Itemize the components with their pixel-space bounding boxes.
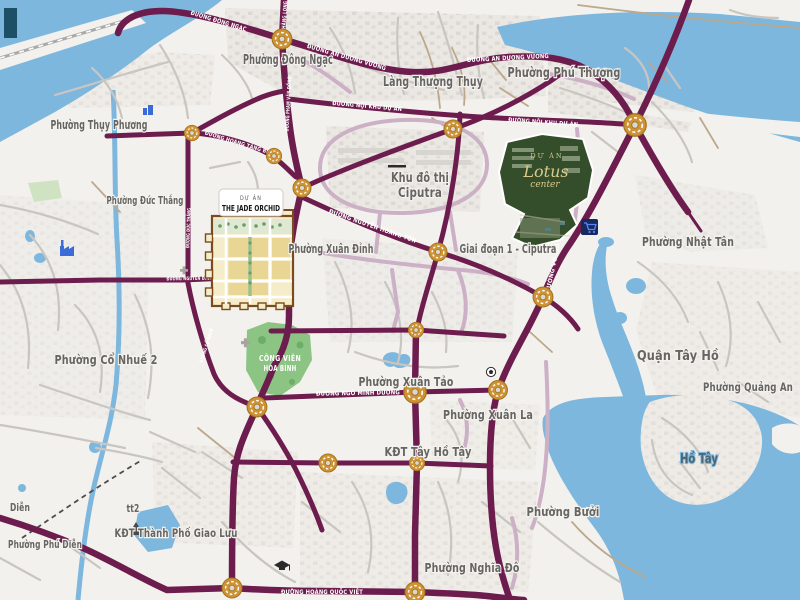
label-giai-doan-1: Giai đoạn 1 - Ciputra <box>460 241 557 256</box>
label-duc-thang: Phường Đức Thắng <box>107 194 184 207</box>
park-label: CÔNG VIÊN HÒA BÌNH <box>259 352 301 373</box>
label-xuan-dinh: Phường Xuân Đỉnh <box>289 241 374 256</box>
label-nhat-tan: Phường Nhật Tân <box>642 234 734 249</box>
roundabout-icon <box>222 578 242 598</box>
monument-marker <box>388 165 406 168</box>
label-thuy-phuong: Phường Thụy Phương <box>51 117 148 132</box>
lotus-sub: center <box>530 180 560 190</box>
label-ho-tay: Hồ Tây <box>680 452 718 467</box>
roundabout-icon <box>266 148 281 163</box>
label-kdt-tay-ho-tay: KĐT Tây Hồ Tây <box>385 444 472 459</box>
map-screenshot: ĐƯỜNG ĐÔNG NGẠC CẦU THĂNG LONG ĐƯỜNG AN … <box>0 0 800 600</box>
roundabout-icon <box>184 125 199 140</box>
lotus-tag: DỰ ÁN <box>530 151 563 160</box>
label-dong-ngac: Phường Đông Ngạc <box>243 53 333 68</box>
soccer-ball-icon <box>486 367 495 376</box>
label-giao-luu: KĐT Thành Phố Giao Lưu <box>115 526 238 540</box>
roundabout-icon <box>429 243 447 261</box>
map-canvas: ĐƯỜNG ĐÔNG NGẠC CẦU THĂNG LONG ĐƯỜNG AN … <box>0 0 800 600</box>
label-nghia-do: Phường Nghĩa Đô <box>425 560 520 575</box>
roundabout-icon <box>533 287 553 307</box>
roundabout-icon <box>405 582 425 600</box>
lotus-name: Lotus <box>522 162 568 181</box>
roundabout-icon <box>272 29 292 49</box>
jade-orchid-tag: DỰ ÁN <box>240 193 262 202</box>
shopping-cart-icon <box>581 219 598 235</box>
dock-structure <box>4 8 17 38</box>
label-lang-thuong-thuy: Làng Thượng Thụy <box>383 75 483 90</box>
roundabout-icon <box>624 114 647 137</box>
roundabout-icon <box>293 179 311 197</box>
roundabout-icon <box>444 120 462 138</box>
label-quang-an: Phường Quảng An <box>703 380 793 394</box>
park-label-line2: HÒA BÌNH <box>264 362 297 373</box>
green-patch <box>28 180 62 202</box>
park-label-line1: CÔNG VIÊN <box>259 352 301 363</box>
label-buoi: Phường Bưởi <box>527 504 600 519</box>
roundabout-icon <box>319 454 337 472</box>
roundabout-icon <box>408 322 423 337</box>
jade-orchid-siteplan <box>206 210 294 310</box>
jade-orchid-name: THE JADE ORCHID <box>222 204 280 213</box>
roundabout-icon <box>247 397 267 417</box>
label-ciputra: Ciputra <box>398 186 442 201</box>
label-phu-dien: Phường Phú Diễn <box>8 538 82 551</box>
label-quan-tay-ho: Quận Tây Hồ <box>637 347 719 364</box>
jade-orchid-sign: DỰ ÁN THE JADE ORCHID <box>219 189 283 216</box>
label-xuan-tao: Phường Xuân Tảo <box>359 374 454 389</box>
label-phu-thuong: Phường Phú Thượng <box>508 65 621 81</box>
label-co-nhue-2: Phường Cổ Nhuế 2 <box>55 352 158 367</box>
project-jade-orchid: DỰ ÁN THE JADE ORCHID <box>206 189 294 310</box>
label-khu-do-thi: Khu đô thị <box>391 171 449 186</box>
roundabout-icon <box>489 381 508 400</box>
label-xuan-la: Phường Xuân La <box>443 407 533 422</box>
label-tt2: tt2 <box>127 502 140 515</box>
label-dien: Diễn <box>10 501 30 514</box>
